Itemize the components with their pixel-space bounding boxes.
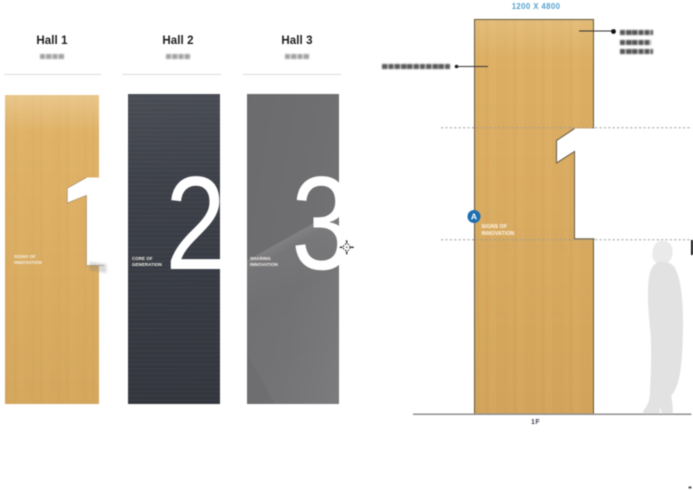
svg-text:A: A — [471, 212, 477, 222]
